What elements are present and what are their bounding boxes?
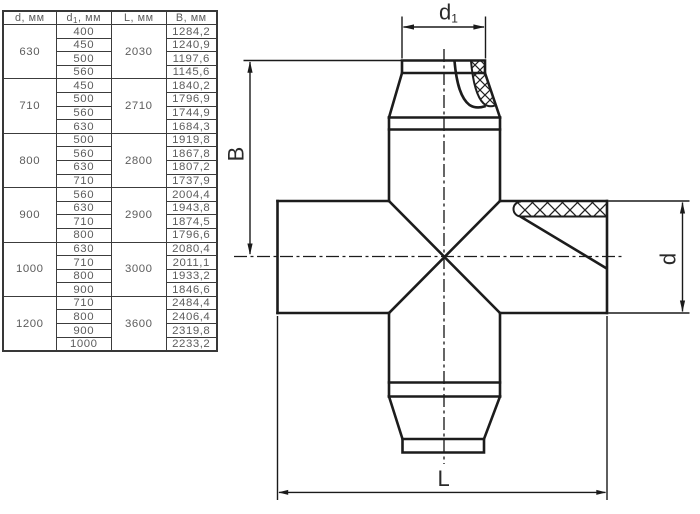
svg-text:d1: d1: [439, 0, 458, 26]
svg-text:d: d: [656, 253, 681, 265]
svg-text:B: B: [224, 147, 249, 162]
svg-text:L: L: [438, 466, 450, 491]
